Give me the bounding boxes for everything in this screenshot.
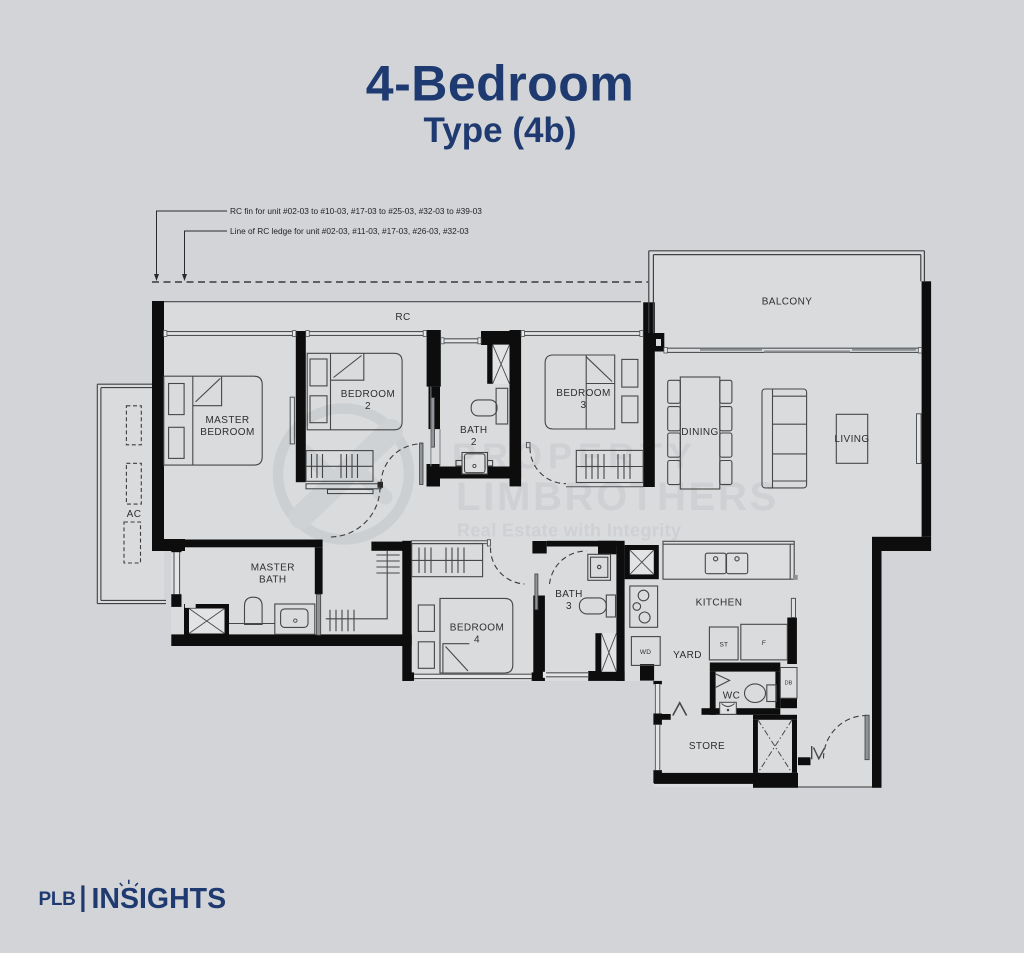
- svg-text:MASTER: MASTER: [251, 563, 295, 574]
- svg-text:PROPERTY: PROPERTY: [452, 436, 698, 477]
- svg-text:Type (4b): Type (4b): [424, 111, 577, 150]
- svg-text:STORE: STORE: [689, 741, 725, 752]
- svg-text:RC: RC: [395, 312, 410, 323]
- svg-text:4: 4: [474, 635, 480, 646]
- svg-text:F: F: [762, 640, 766, 647]
- svg-text:RC fin for unit #02-03 to #10-: RC fin for unit #02-03 to #10-03, #17-03…: [230, 206, 482, 216]
- svg-text:3: 3: [566, 601, 572, 612]
- svg-text:ST: ST: [719, 642, 728, 649]
- svg-text:YARD: YARD: [673, 650, 702, 661]
- svg-text:LIVING: LIVING: [834, 434, 869, 445]
- svg-text:INSIGHTS: INSIGHTS: [92, 883, 227, 915]
- svg-text:Line of RC ledge for unit #02-: Line of RC ledge for unit #02-03, #11-03…: [230, 226, 469, 236]
- svg-text:BALCONY: BALCONY: [762, 297, 813, 308]
- svg-text:BATH: BATH: [259, 575, 287, 586]
- svg-text:BEDROOM: BEDROOM: [341, 389, 395, 400]
- svg-text:BEDROOM: BEDROOM: [200, 427, 254, 438]
- svg-text:4-Bedroom: 4-Bedroom: [366, 56, 634, 112]
- svg-text:BATH: BATH: [460, 425, 488, 436]
- svg-text:BEDROOM: BEDROOM: [450, 623, 504, 634]
- svg-text:MASTER: MASTER: [205, 415, 249, 426]
- svg-text:AC: AC: [127, 509, 142, 520]
- svg-text:LIMBROTHERS: LIMBROTHERS: [456, 475, 779, 519]
- svg-text:BEDROOM: BEDROOM: [556, 388, 610, 399]
- svg-text:DB: DB: [785, 681, 793, 687]
- svg-text:BATH: BATH: [555, 589, 583, 600]
- svg-text:PLB: PLB: [39, 889, 76, 910]
- svg-text:WC: WC: [723, 691, 740, 702]
- svg-text:KITCHEN: KITCHEN: [696, 598, 743, 609]
- svg-text:WD: WD: [640, 649, 651, 656]
- svg-text:Real Estate with Integrity: Real Estate with Integrity: [457, 521, 681, 541]
- svg-text:3: 3: [581, 400, 587, 411]
